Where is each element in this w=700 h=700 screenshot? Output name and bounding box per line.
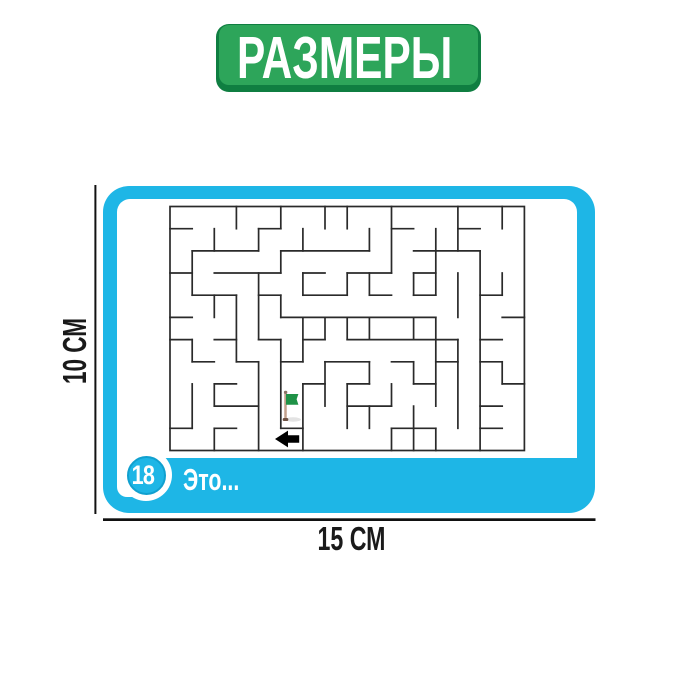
- svg-text:15 СМ: 15 СМ: [318, 520, 386, 557]
- svg-text:10 СМ: 10 СМ: [56, 318, 93, 384]
